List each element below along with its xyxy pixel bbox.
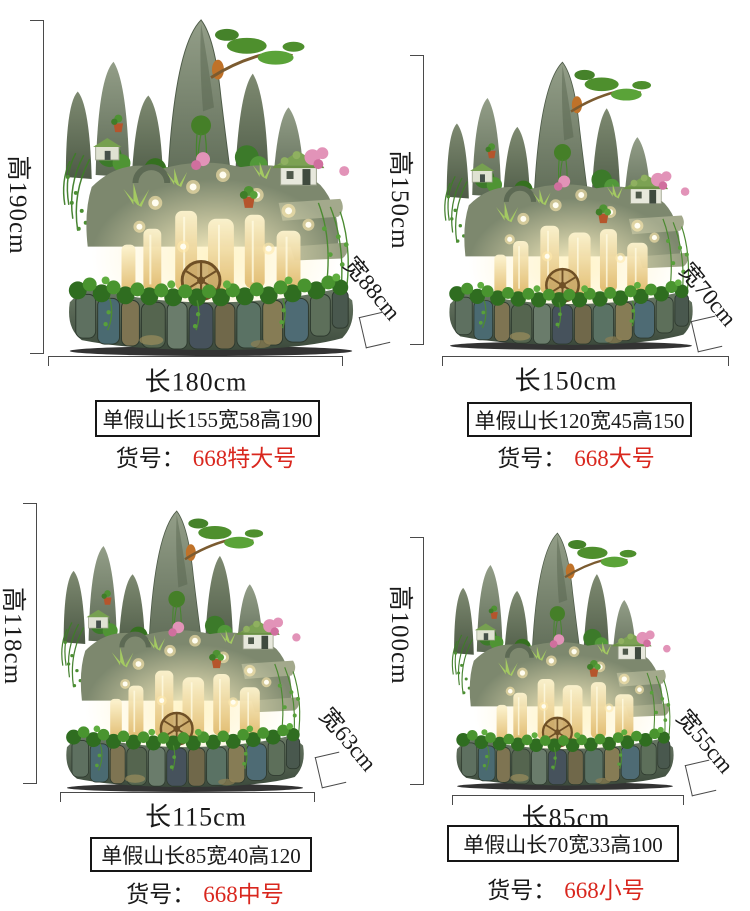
- spec-text: 单假山长85宽40高120: [101, 840, 301, 870]
- width-dimension-bracket: [315, 752, 347, 789]
- product-photo: [52, 500, 318, 792]
- product-card: 高190cm 宽88cm 长180cm 单假山长155宽58高190 货号：66…: [0, 0, 375, 480]
- length-label: 长150cm: [515, 361, 618, 398]
- model-number: 668中号: [203, 882, 284, 907]
- product-photo: [438, 524, 692, 790]
- spec-box: 单假山长155宽58高190: [95, 400, 320, 437]
- model-prefix: 货号：: [497, 446, 566, 471]
- product-photo: [433, 52, 709, 350]
- height-label: 高100cm: [384, 585, 420, 684]
- spec-text: 单假山长155宽58高190: [103, 404, 313, 434]
- model-prefix: 货号：: [126, 882, 195, 907]
- model-number: 668小号: [564, 878, 645, 903]
- height-label: 高190cm: [2, 155, 38, 254]
- height-label: 高150cm: [384, 150, 420, 249]
- height-label: 高118cm: [0, 587, 33, 685]
- length-label: 长180cm: [145, 362, 248, 399]
- model-line: 货号：668大号: [497, 439, 655, 473]
- model-line: 货号：668中号: [126, 875, 284, 909]
- product-photo: [50, 8, 372, 356]
- spec-box: 单假山长70宽33高100: [447, 825, 679, 862]
- model-line: 货号：668特大号: [116, 439, 297, 473]
- spec-text: 单假山长70宽33高100: [463, 829, 663, 859]
- product-card: 高150cm 宽70cm 长150cm 单假山长120宽45高150 货号：66…: [390, 0, 750, 480]
- spec-box: 单假山长85宽40高120: [90, 837, 312, 872]
- model-prefix: 货号：: [116, 446, 185, 471]
- model-number: 668大号: [574, 446, 655, 471]
- product-card: 高100cm 宽55cm 长85cm 单假山长70宽33高100 货号：668小…: [390, 488, 750, 911]
- model-number: 668特大号: [193, 446, 297, 471]
- model-prefix: 货号：: [487, 878, 556, 903]
- model-line: 货号：668小号: [487, 871, 645, 905]
- product-card: 高118cm 宽63cm 长115cm 单假山长85宽40高120 货号：668…: [0, 488, 375, 911]
- spec-box: 单假山长120宽45高150: [467, 402, 692, 437]
- length-label: 长115cm: [145, 797, 247, 834]
- spec-text: 单假山长120宽45高150: [475, 405, 685, 435]
